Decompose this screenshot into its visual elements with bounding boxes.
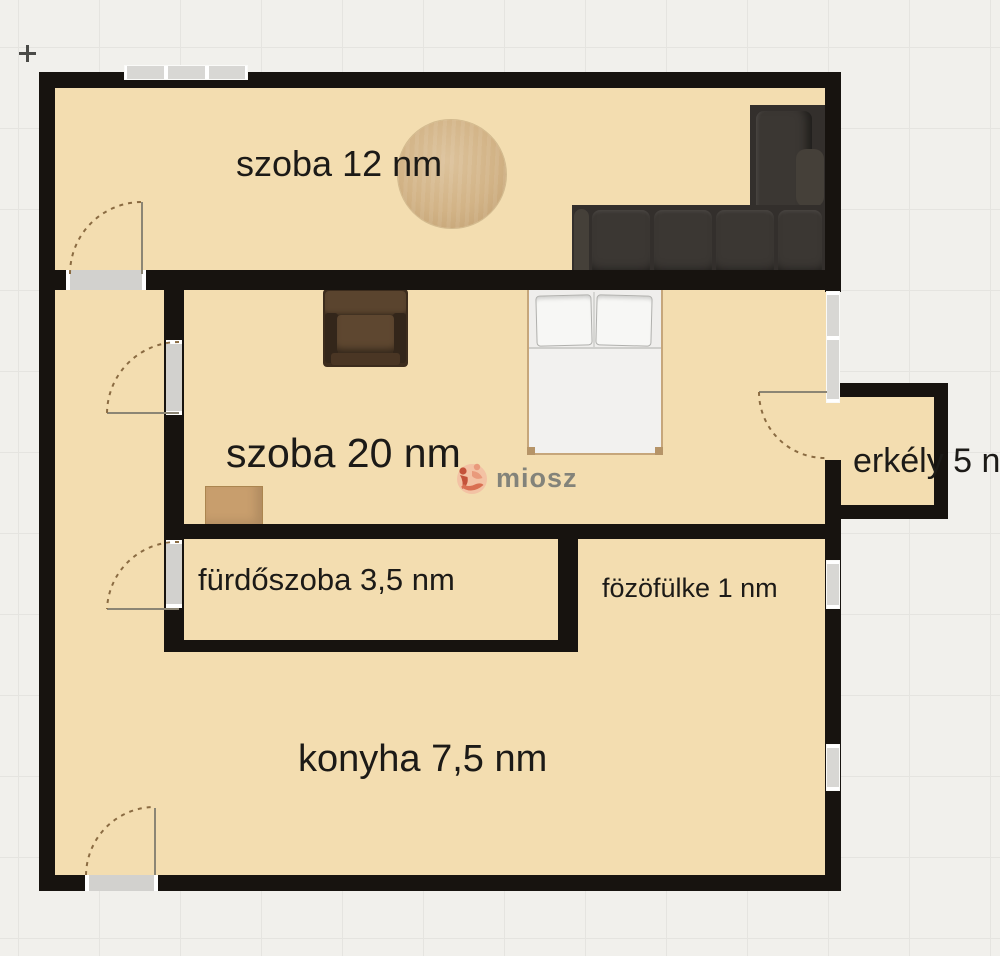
room-label-konyha: konyha 7,5 nm bbox=[298, 740, 547, 780]
armchair[interactable] bbox=[323, 289, 408, 367]
konyha-entry-door-opening[interactable] bbox=[85, 875, 158, 891]
room-label-furdoszoba: fürdőszoba 3,5 nm bbox=[198, 564, 455, 597]
wall-exterior-bottom bbox=[39, 875, 841, 891]
floorplan-canvas[interactable]: szoba 12 nm szoba 20 nm erkély 5 nm fürd… bbox=[0, 0, 1000, 956]
erkely-glazed-panel[interactable] bbox=[827, 292, 839, 402]
konyha-entry-door-swing[interactable] bbox=[85, 806, 157, 876]
wall-furdoszoba-bottom bbox=[164, 640, 578, 652]
furdoszoba-door-swing[interactable] bbox=[104, 540, 184, 612]
watermark-text: miosz bbox=[496, 463, 578, 494]
wall-exterior-right-upper bbox=[825, 72, 841, 292]
wall-exterior-left bbox=[39, 72, 55, 891]
szoba12-door-swing[interactable] bbox=[66, 200, 146, 278]
wall-erkely-bottom bbox=[837, 505, 948, 519]
corner-sofa-vertical[interactable] bbox=[750, 105, 826, 205]
fozofulke-window[interactable] bbox=[827, 561, 839, 608]
wall-szoba12-szoba20-divider bbox=[39, 270, 841, 290]
wall-furdoszoba-right bbox=[558, 524, 578, 652]
konyha-window[interactable] bbox=[827, 745, 839, 790]
szoba12-top-window[interactable] bbox=[125, 66, 247, 79]
wall-szoba20-bottom bbox=[164, 524, 841, 539]
erkely-door-swing[interactable] bbox=[757, 390, 827, 460]
szoba20-door-swing[interactable] bbox=[104, 340, 184, 416]
room-label-erkely: erkély 5 nm bbox=[853, 444, 1000, 480]
miosz-logo-icon bbox=[452, 458, 492, 498]
side-table[interactable] bbox=[205, 486, 263, 529]
watermark: miosz bbox=[452, 458, 578, 498]
double-bed[interactable] bbox=[527, 288, 663, 455]
room-label-szoba12: szoba 12 nm bbox=[236, 145, 442, 183]
erkely-door-gap-floor bbox=[825, 400, 841, 462]
room-label-fozofulke: fözöfülke 1 nm bbox=[602, 574, 778, 602]
wall-erkely-top bbox=[837, 383, 948, 397]
room-label-szoba20: szoba 20 nm bbox=[226, 432, 461, 475]
